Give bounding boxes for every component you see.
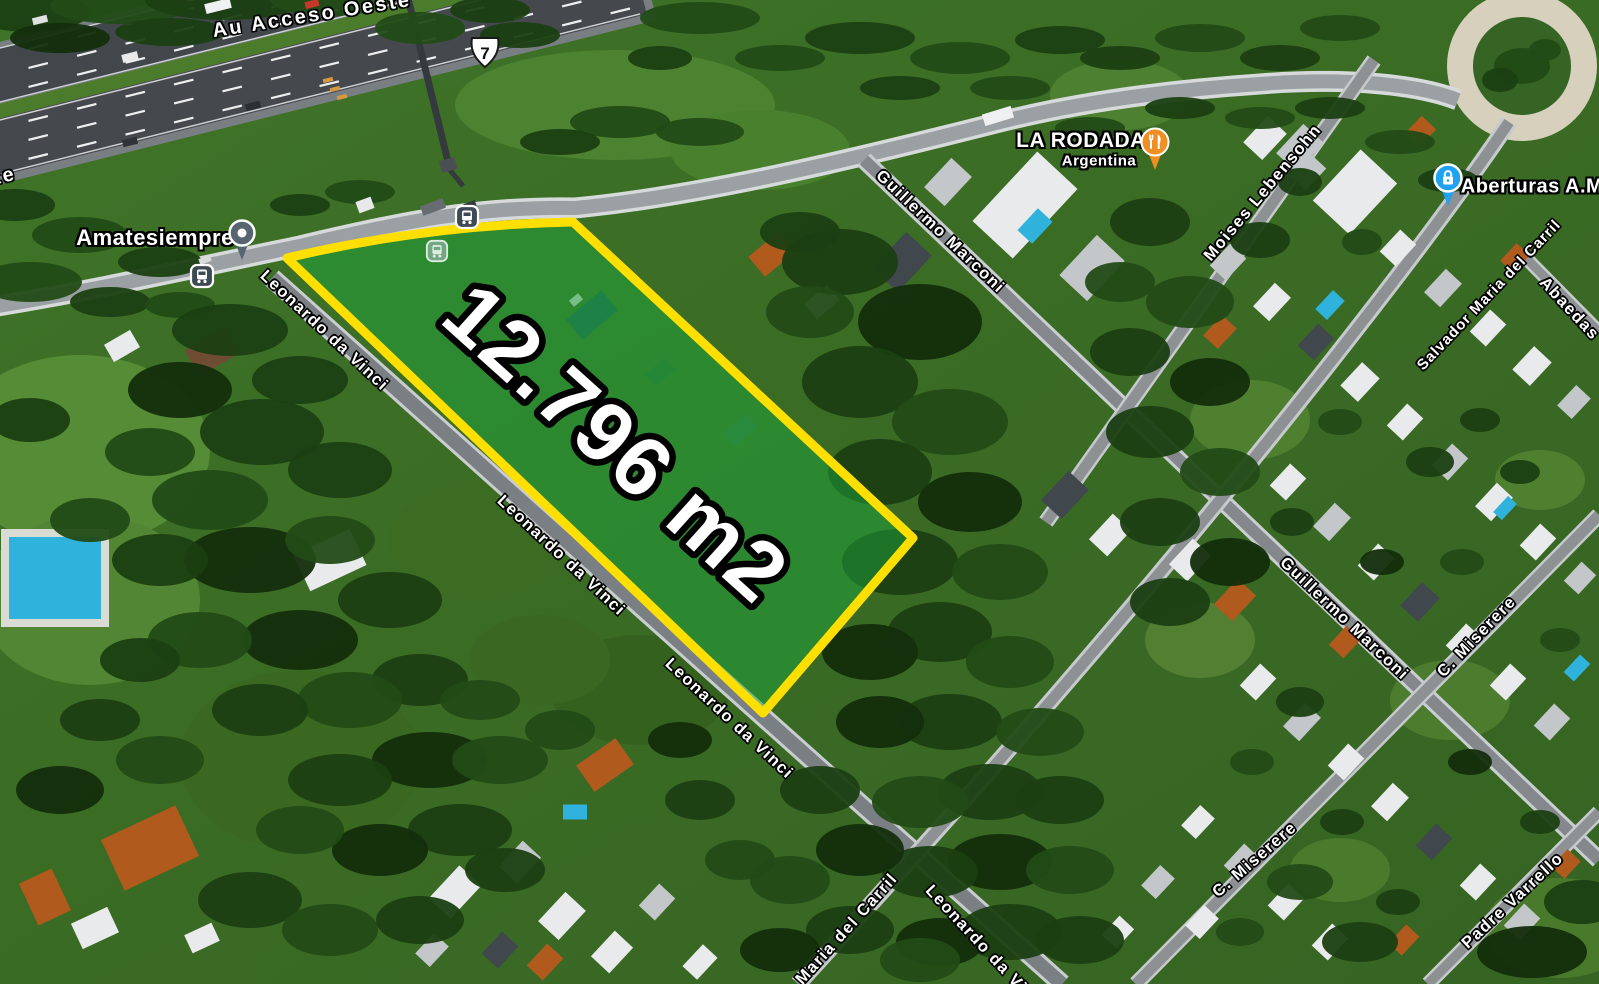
place-pin-icon[interactable] bbox=[226, 218, 258, 267]
restaurant-icon[interactable] bbox=[1138, 126, 1172, 177]
place-sublabel-argentina: Argentina bbox=[1062, 153, 1137, 170]
satellite-map[interactable]: 12.796 m2 7 Au Acceso Oeste Au Acceso Oe… bbox=[0, 0, 1599, 984]
route-shield-number: 7 bbox=[480, 44, 489, 63]
place-label-amatesiempre[interactable]: Amatesiempre bbox=[76, 225, 234, 251]
place-label-la-rodada[interactable]: LA RODADA bbox=[1016, 129, 1146, 153]
bus-icon[interactable] bbox=[454, 204, 480, 235]
bus-icon[interactable] bbox=[189, 263, 215, 294]
place-label-aberturas[interactable]: Aberturas A.M bbox=[1461, 176, 1599, 199]
map-canvas: 12.796 m2 7 bbox=[0, 0, 1599, 984]
padlock-icon[interactable] bbox=[1431, 162, 1465, 213]
transit-icon[interactable] bbox=[425, 239, 449, 268]
